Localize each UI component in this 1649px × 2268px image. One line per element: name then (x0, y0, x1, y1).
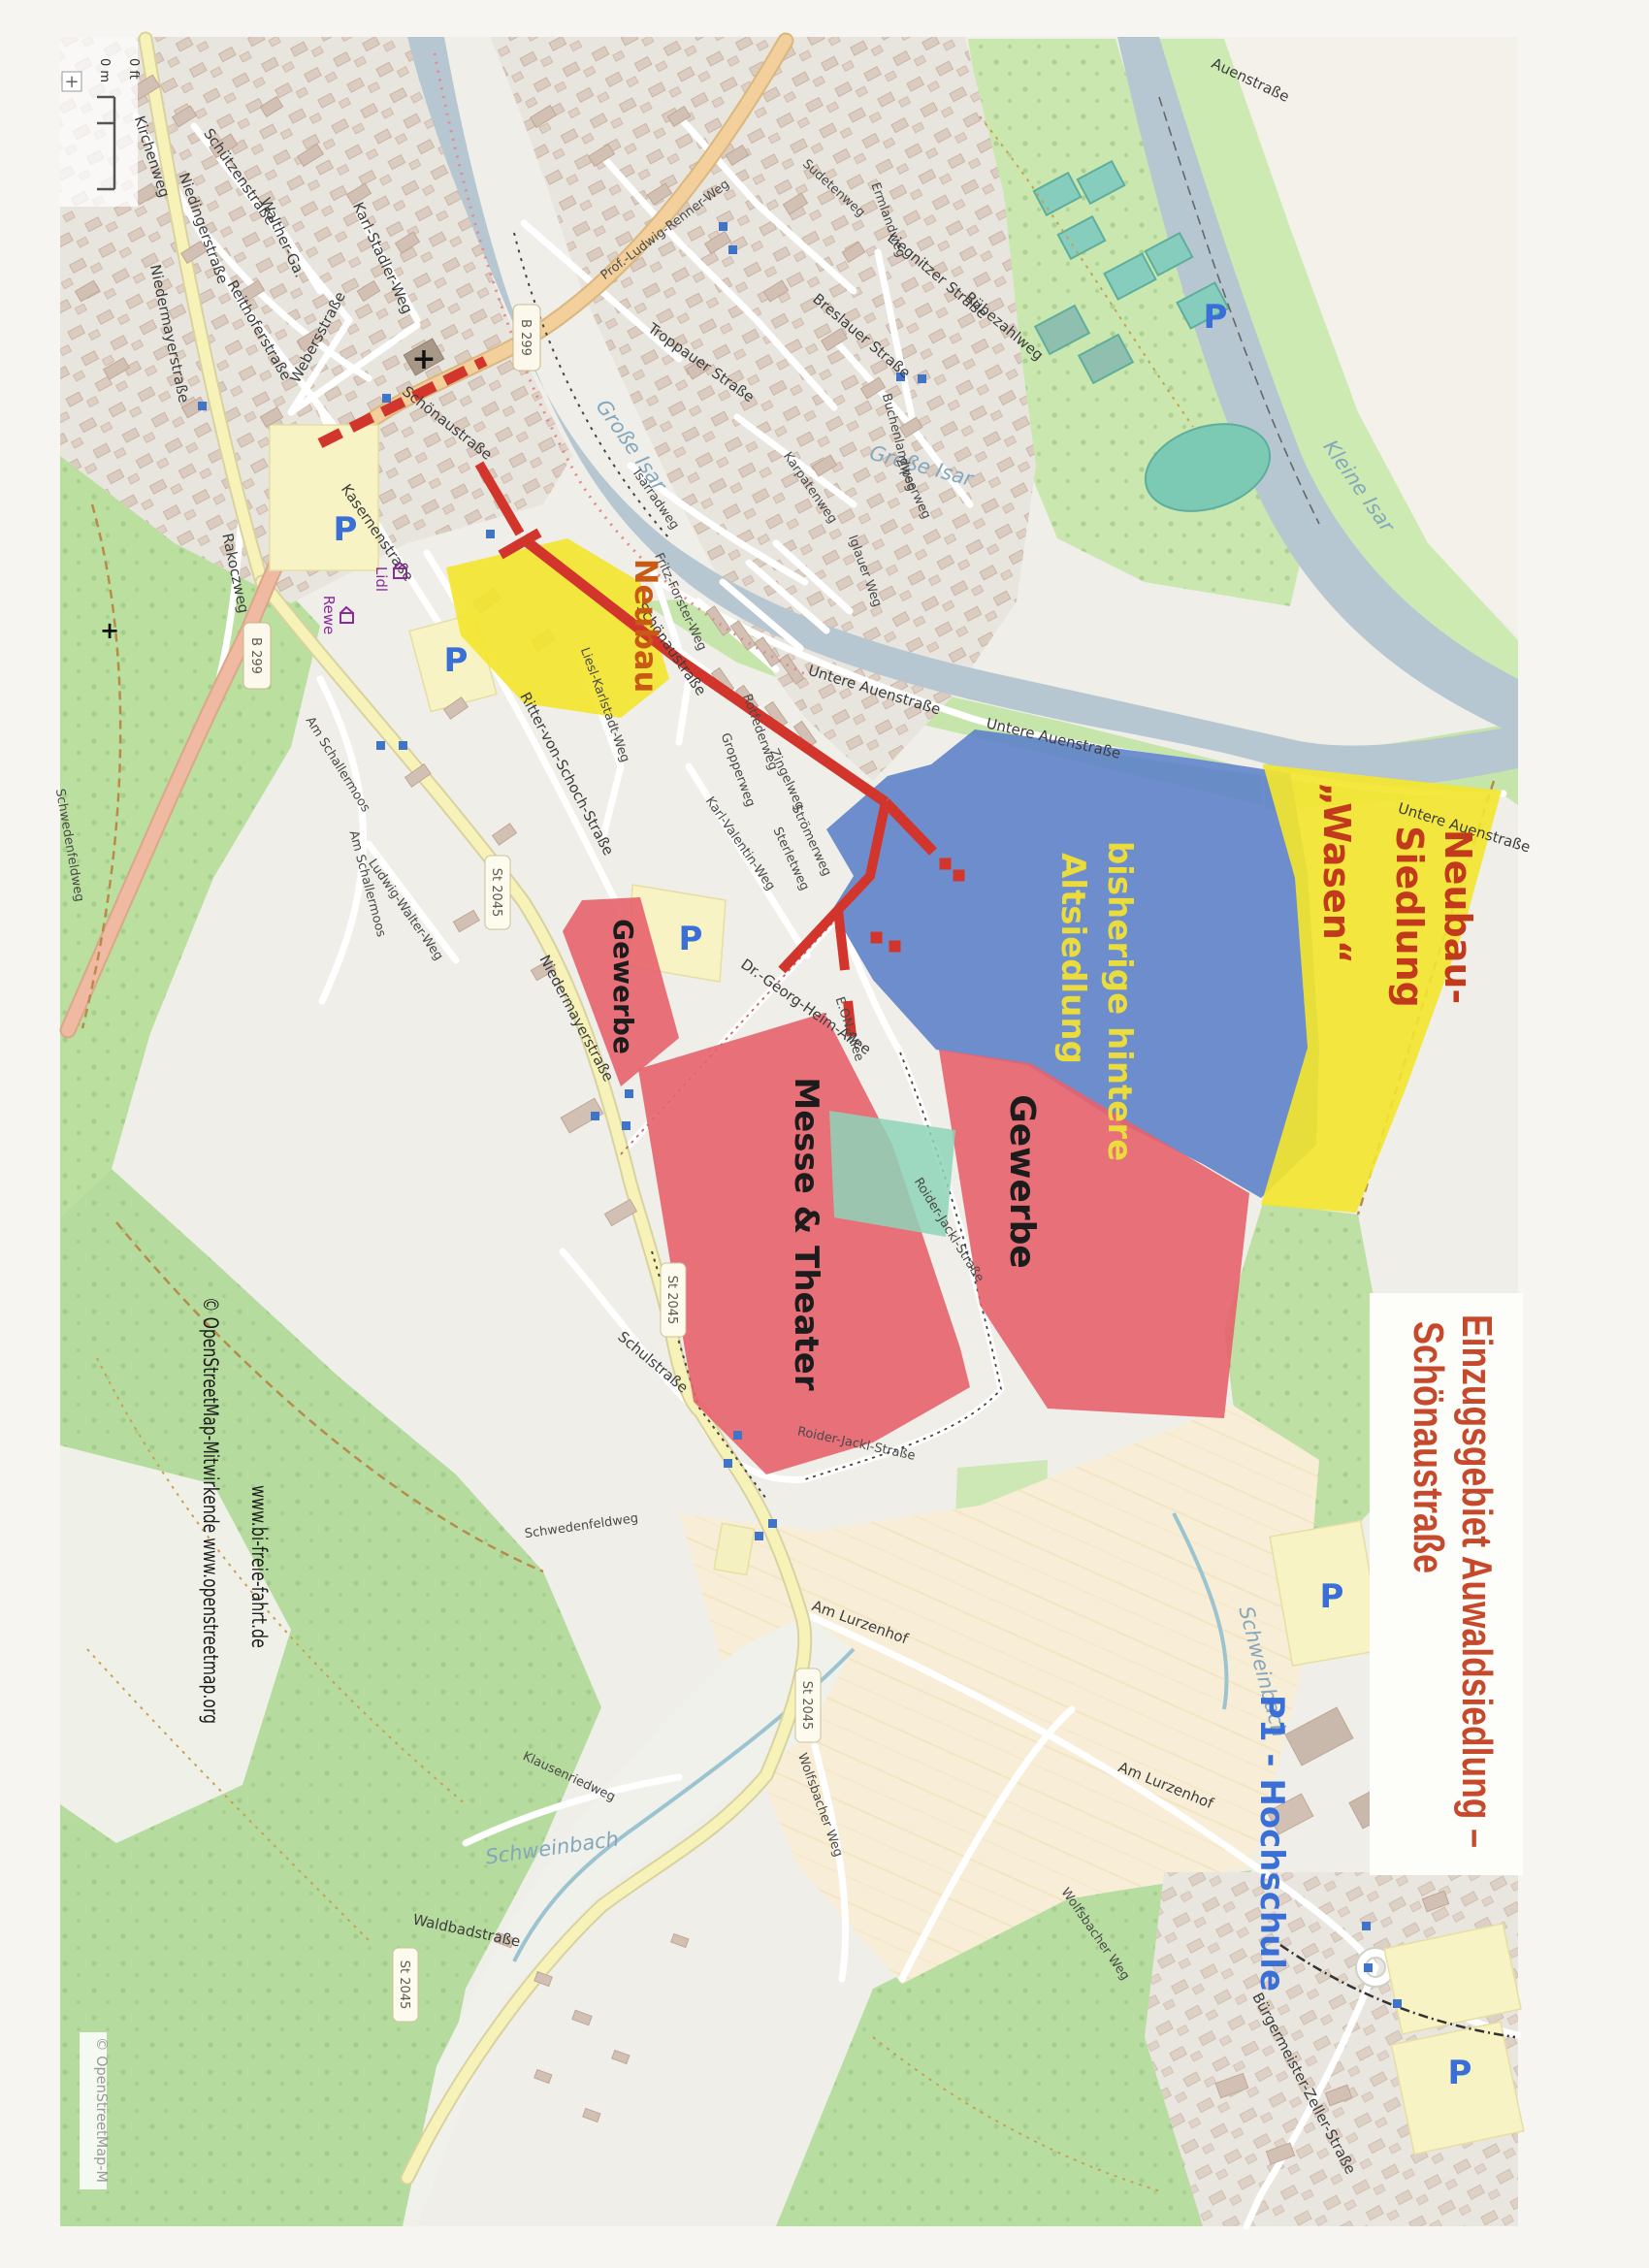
road-badge-st2045: St 2045 (799, 1681, 814, 1731)
rewe-label: Rewe (320, 596, 338, 634)
lidl-label: Lidl (372, 567, 390, 592)
parking-icon: P (1320, 1577, 1344, 1616)
church-cross-icon: + (411, 342, 436, 376)
parking-icon: P (444, 641, 469, 680)
zone-label-altsiedlung-line1: bisherige hintere (1100, 841, 1139, 1161)
map-title-line1: Einzugsgebiet Auwaldsiedlung – (1453, 1314, 1501, 1848)
scale-imperial-label: 0 ft (126, 58, 141, 80)
osm-attribution-text: © OpenStreetMap-Mitwirkende www.openstre… (199, 1297, 222, 1724)
road-badge-st2045: St 2045 (664, 1276, 679, 1325)
parking-icon: P (1204, 298, 1228, 337)
zone-label-gewerbe-west: Gewerbe (607, 919, 639, 1054)
road-badge-b299: B 299 (518, 319, 533, 356)
zone-label-altsiedlung-line2: Altsiedlung (1053, 853, 1092, 1064)
zone-label-neubau: Neubau (628, 559, 664, 694)
scanned-map-page: + + (0, 0, 1649, 2268)
corner-attribution-text: © OpenStreetMap-M (93, 2037, 111, 2183)
map-canvas: + + (0, 0, 1649, 2268)
zoom-in-icon: + (64, 72, 79, 92)
zone-label-wasen-line3: „Wasen“ (1315, 782, 1358, 964)
map-title-line2: Schönaustraße (1405, 1321, 1452, 1573)
scale-metric-label: 0 m (97, 58, 112, 82)
zone-label-wasen-line2: Siedlung (1388, 826, 1431, 1008)
scale-bar: 0 m 0 ft + (60, 37, 141, 207)
campaign-url-text: www.bi-freie-fahrt.de (247, 1485, 271, 1648)
road-badge-st2045: St 2045 (397, 1960, 411, 2010)
parking-icon: P (1448, 2054, 1472, 2092)
zone-label-messe-theater: Messe & Theater (787, 1077, 825, 1390)
zone-label-gewerbe-ost: Gewerbe (1002, 1094, 1042, 1269)
zone-label-wasen-line1: Neubau- (1437, 829, 1479, 1004)
hochschule-parking-label: P1 - Hochschule (1252, 1695, 1291, 1992)
road-badge-st2045: St 2045 (489, 868, 503, 918)
parking-icon: P (334, 510, 358, 549)
road-badge-b299: B 299 (248, 637, 263, 674)
title-box: Einzugsgebiet Auwaldsiedlung – Schönaust… (1370, 1293, 1523, 1875)
parking-icon: P (679, 920, 703, 958)
